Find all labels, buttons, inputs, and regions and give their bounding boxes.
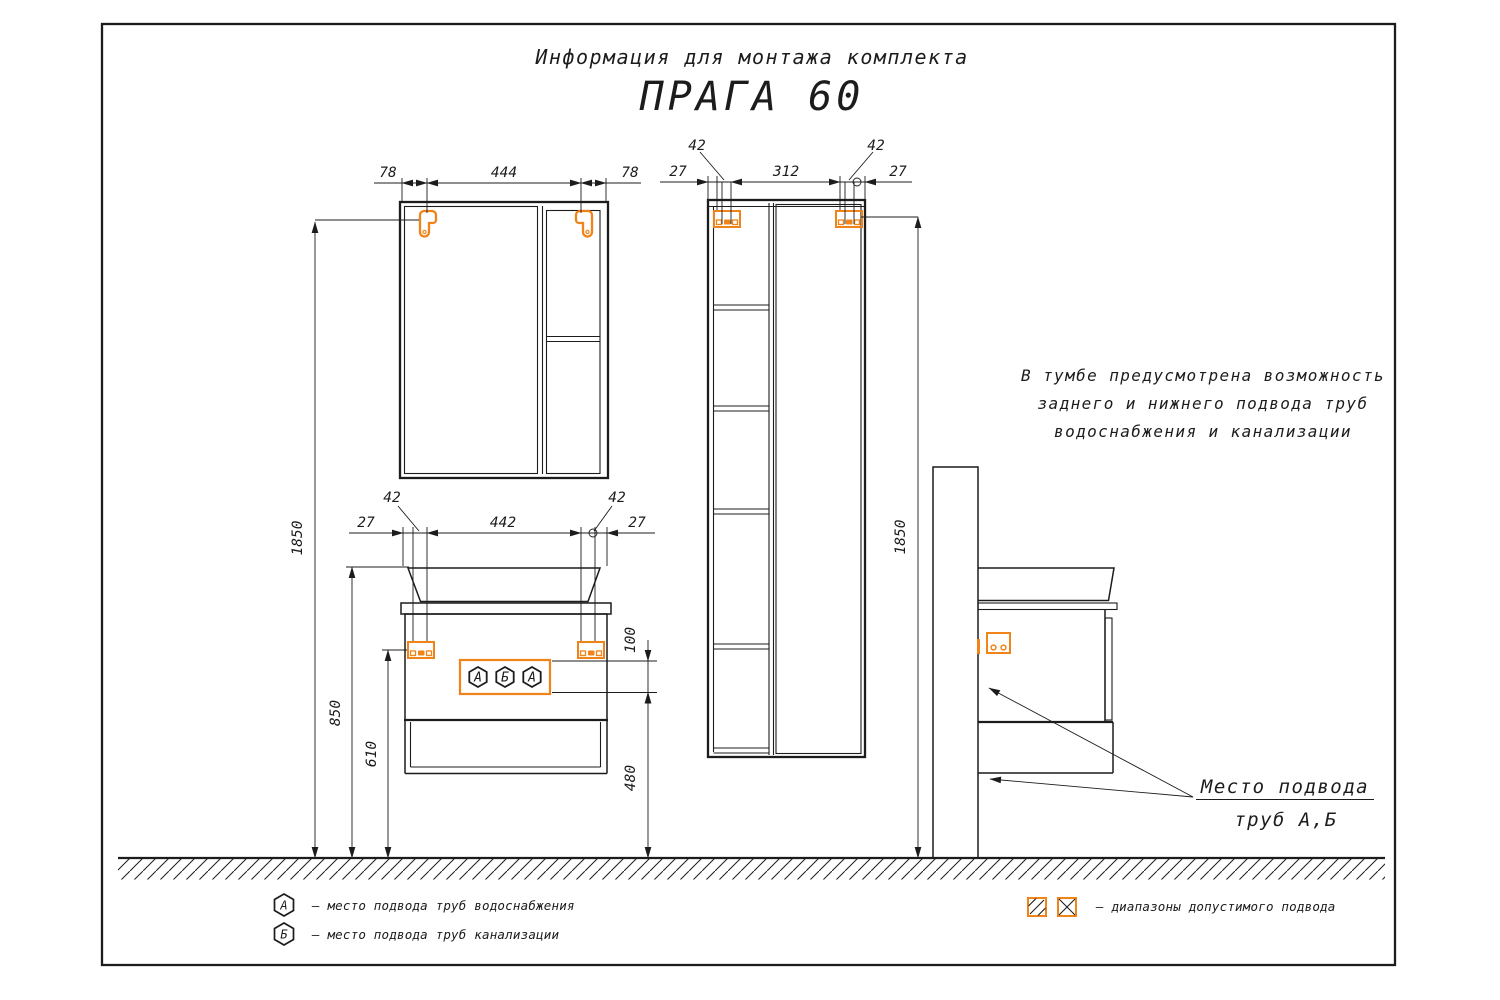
tall-cabinet-shelves — [714, 305, 770, 753]
mirror-door — [405, 207, 538, 474]
dim-vanity-offset-right: 27 — [628, 515, 646, 531]
floor-hatch — [118, 859, 1385, 880]
drawing-title: ПРАГА 60 — [639, 74, 865, 120]
installation-drawing: Информация для монтажа комплекта ПРАГА 6… — [0, 0, 1500, 1000]
door-panel-side — [1105, 618, 1112, 720]
dim-bracket-height: 610 — [364, 741, 380, 767]
dim-tall-offset-left: 27 — [669, 164, 687, 180]
dim-mirror-left: 78 — [379, 165, 396, 181]
countertop-side — [978, 603, 1117, 610]
legend-right: – диапазоны допустимого подвода — [1028, 898, 1336, 916]
vanity-front-view: А Б А — [401, 568, 611, 774]
dim-total-height-left: 1850 — [290, 520, 306, 555]
dim-tall-width: 312 — [772, 164, 799, 180]
legend-symbol-a: А — [279, 899, 287, 913]
mount-bracket-icon — [408, 642, 434, 658]
note-text: В тумбе предусмотрена возможность заднег… — [1021, 366, 1385, 441]
drawing-border — [102, 24, 1395, 965]
wall-section — [933, 467, 978, 858]
title-block: Информация для монтажа комплекта ПРАГА 6… — [534, 45, 968, 120]
leader-arrow — [990, 779, 1193, 797]
mirror-cabinet-front-view — [400, 202, 608, 478]
mount-bracket-icon — [578, 642, 604, 658]
mount-bracket-icon — [714, 211, 740, 227]
dim-vanity-bracket-left: 42 — [383, 490, 400, 506]
mount-bracket-icon — [836, 211, 862, 227]
port-symbol: Б — [501, 671, 509, 686]
legend-ranges-text: – диапазоны допустимого подвода — [1095, 899, 1336, 914]
port-symbol: А — [473, 671, 482, 686]
installation-drawing-page: Информация для монтажа комплекта ПРАГА 6… — [0, 0, 1500, 1000]
legend-left: А – место подвода труб водоснабжения Б –… — [275, 894, 575, 945]
countertop — [401, 603, 611, 614]
legend-water-text: – место подвода труб водоснабжения — [311, 898, 575, 913]
dim-mirror-width: 444 — [491, 165, 517, 181]
dim-tall-offset-right: 27 — [889, 164, 907, 180]
note-line3: водоснабжения и канализации — [1054, 422, 1352, 441]
mirror-dimensions: 78 444 78 — [374, 165, 641, 213]
dim-total-height-right: 1850 — [893, 519, 909, 554]
side-view — [933, 467, 1117, 858]
port-symbol: А — [527, 671, 536, 686]
dim-tall-bracket-right: 42 — [867, 138, 884, 154]
tall-cabinet-door — [776, 205, 861, 754]
hanger-hook-icon — [576, 211, 592, 237]
drawing-subtitle: Информация для монтажа комплекта — [534, 45, 968, 69]
pipes-callout-line1: Место подвода — [1200, 776, 1369, 798]
floor-line — [118, 858, 1385, 880]
dim-vanity-width: 442 — [490, 515, 516, 531]
leader-arrow — [989, 688, 1193, 797]
dim-zone-height: 100 — [623, 627, 639, 653]
dim-top-height: 850 — [328, 700, 344, 726]
dim-mirror-right: 78 — [621, 165, 638, 181]
legend-symbol-b: Б — [280, 928, 288, 942]
tall-cabinet-front-view — [708, 200, 865, 757]
pipes-callout-line2: труб А,Б — [1234, 809, 1338, 831]
dim-vanity-offset-left: 27 — [357, 515, 375, 531]
dim-vanity-bracket-right: 42 — [608, 490, 625, 506]
mount-bracket-side-icon — [987, 633, 1010, 653]
dim-tall-bracket-left: 42 — [688, 138, 705, 154]
legend-sewer-text: – место подвода труб канализации — [311, 927, 559, 942]
pipes-callout: Место подвода труб А,Б — [989, 688, 1374, 831]
tall-dimensions: 42 42 27 312 27 1850 — [660, 138, 918, 858]
dim-zone-to-floor: 480 — [623, 765, 639, 791]
hanger-hook-icon — [420, 211, 436, 237]
basin — [408, 568, 600, 602]
note-line1: В тумбе предусмотрена возможность — [1021, 366, 1385, 385]
note-line2: заднего и нижнего подвода труб — [1038, 394, 1369, 413]
basin-side — [978, 568, 1114, 601]
